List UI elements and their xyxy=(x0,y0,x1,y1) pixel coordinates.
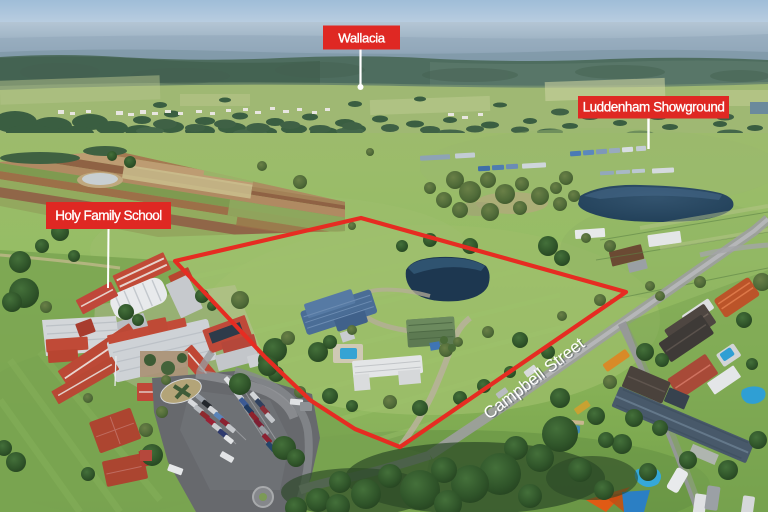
svg-text:Wallacia: Wallacia xyxy=(338,31,386,46)
svg-text:Luddenham Showground: Luddenham Showground xyxy=(583,100,725,115)
svg-text:Holy Family School: Holy Family School xyxy=(55,208,162,223)
